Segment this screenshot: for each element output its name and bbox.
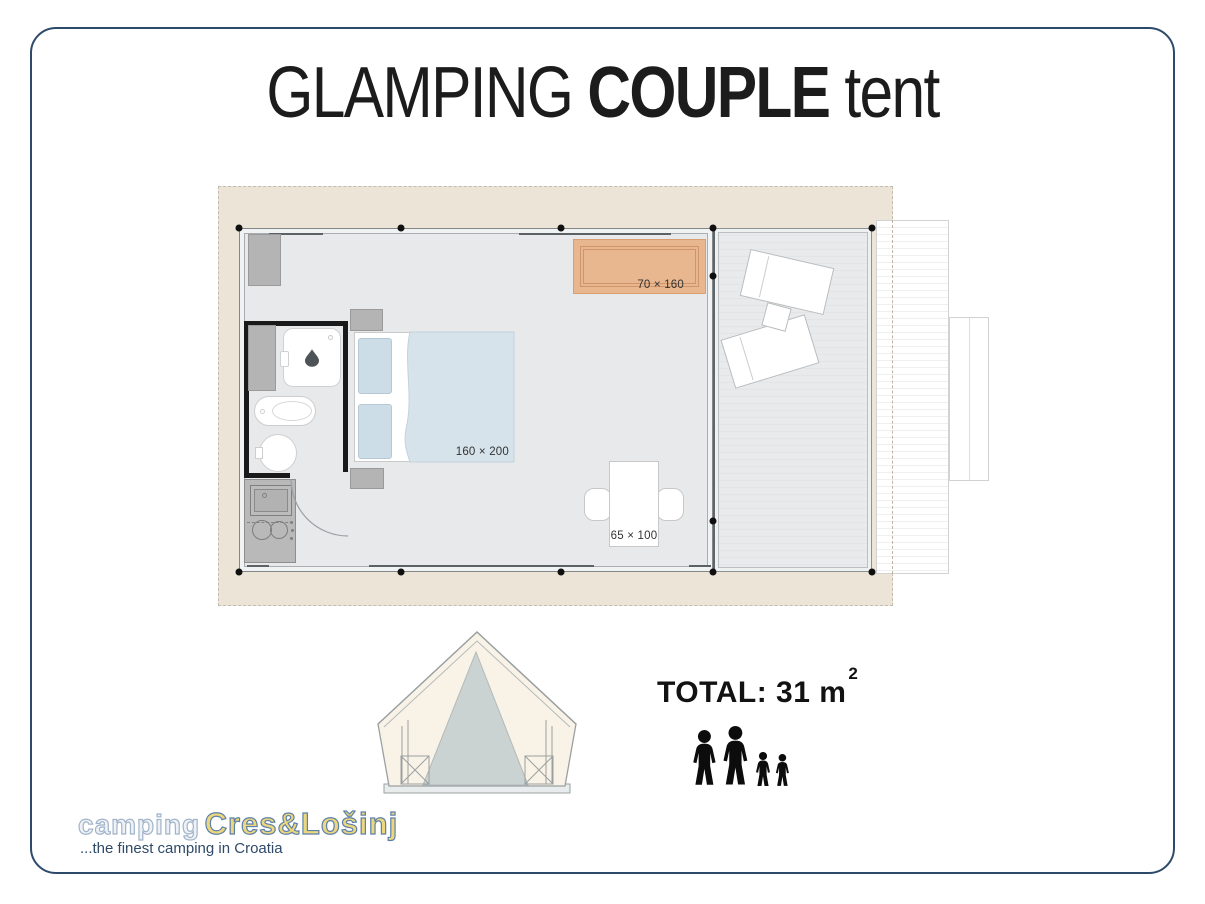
tent-pole-dot — [398, 225, 405, 232]
tent-pole-dot — [558, 225, 565, 232]
brand-logo: camping Cres&Lošinj — [78, 806, 398, 842]
tent-pole-dot — [236, 569, 243, 576]
kitchenette — [244, 479, 296, 563]
stove-burner — [270, 521, 288, 539]
pillow — [358, 338, 392, 394]
title-word-couple: COUPLE — [587, 53, 829, 133]
tent-pole-dot — [710, 569, 717, 576]
title-word-glamping: GLAMPING — [266, 53, 572, 133]
wall-opening-mark — [689, 565, 711, 567]
kitchen-sink — [250, 485, 292, 516]
tent-pole-dot — [869, 225, 876, 232]
table-dimension-label: 65 × 100 — [607, 530, 661, 542]
floor-plan: 70 × 160 160 × 200 65 — [218, 186, 893, 606]
tent-pole-dot — [558, 569, 565, 576]
toilet-bowl — [272, 401, 312, 421]
step-divider — [969, 318, 970, 480]
stove-burner — [252, 520, 272, 540]
rug-dimension-label: 70 × 160 — [609, 279, 684, 291]
sink-drain-icon — [262, 493, 267, 498]
chair-left — [584, 488, 612, 521]
washbasin-tap — [255, 447, 263, 459]
nightstand-bottom — [350, 468, 384, 489]
shower-knob-icon — [328, 335, 333, 340]
pillow — [358, 404, 392, 459]
adult-icon — [693, 730, 715, 785]
lounger-headrest — [759, 256, 769, 297]
total-area-superscript: 2 — [848, 664, 858, 683]
tent-canvas-edge — [892, 220, 893, 574]
adult-icon — [723, 726, 747, 785]
stove-knob-icon — [290, 537, 293, 540]
entry-step — [949, 317, 989, 481]
stove-knob-icon — [290, 521, 293, 524]
bed-dimension-label: 160 × 200 — [449, 446, 509, 458]
flush-button-icon — [260, 409, 265, 414]
tent-pole-dot — [236, 225, 243, 232]
total-area-label: TOTAL: 31 m2 — [657, 676, 856, 710]
shower — [283, 328, 341, 387]
occupancy-icons — [690, 724, 800, 786]
chair-right — [656, 488, 684, 521]
wall-opening-mark — [247, 565, 269, 567]
shower-door-handle — [280, 351, 289, 367]
tent-elevation-drawing — [368, 628, 586, 800]
bathroom-cabinet — [248, 325, 276, 391]
brand-name: Cres&Lošinj — [205, 806, 399, 841]
stove-knob-icon — [291, 529, 294, 532]
tent-pole-dot — [710, 518, 717, 525]
child-icon — [756, 752, 770, 786]
washbasin — [259, 434, 297, 472]
wardrobe — [248, 234, 281, 286]
lounger-headrest — [740, 337, 754, 380]
child-icon — [776, 754, 789, 786]
outside-decking — [876, 220, 949, 574]
wall-opening-mark — [369, 565, 594, 567]
title-word-tent: tent — [844, 53, 938, 133]
brand-prefix: camping — [78, 809, 200, 840]
glamping-tent-infographic: { "header": { "word1": "GLAMPING", "word… — [0, 0, 1205, 904]
toilet — [254, 396, 316, 426]
water-drop-icon — [305, 349, 319, 367]
total-area-text: TOTAL: 31 m — [657, 676, 846, 709]
page-title: GLAMPING COUPLE tent — [96, 57, 1108, 129]
nightstand-top — [350, 309, 383, 331]
wall-opening-mark — [519, 233, 671, 235]
tent-pole-dot — [710, 273, 717, 280]
duvet — [398, 331, 515, 463]
tent-pole-dot — [710, 225, 717, 232]
bathroom-door-opening — [290, 472, 348, 479]
tent-pole-dot — [869, 569, 876, 576]
brand-tagline: ...the finest camping in Croatia — [80, 840, 283, 857]
tent-pole-dot — [398, 569, 405, 576]
